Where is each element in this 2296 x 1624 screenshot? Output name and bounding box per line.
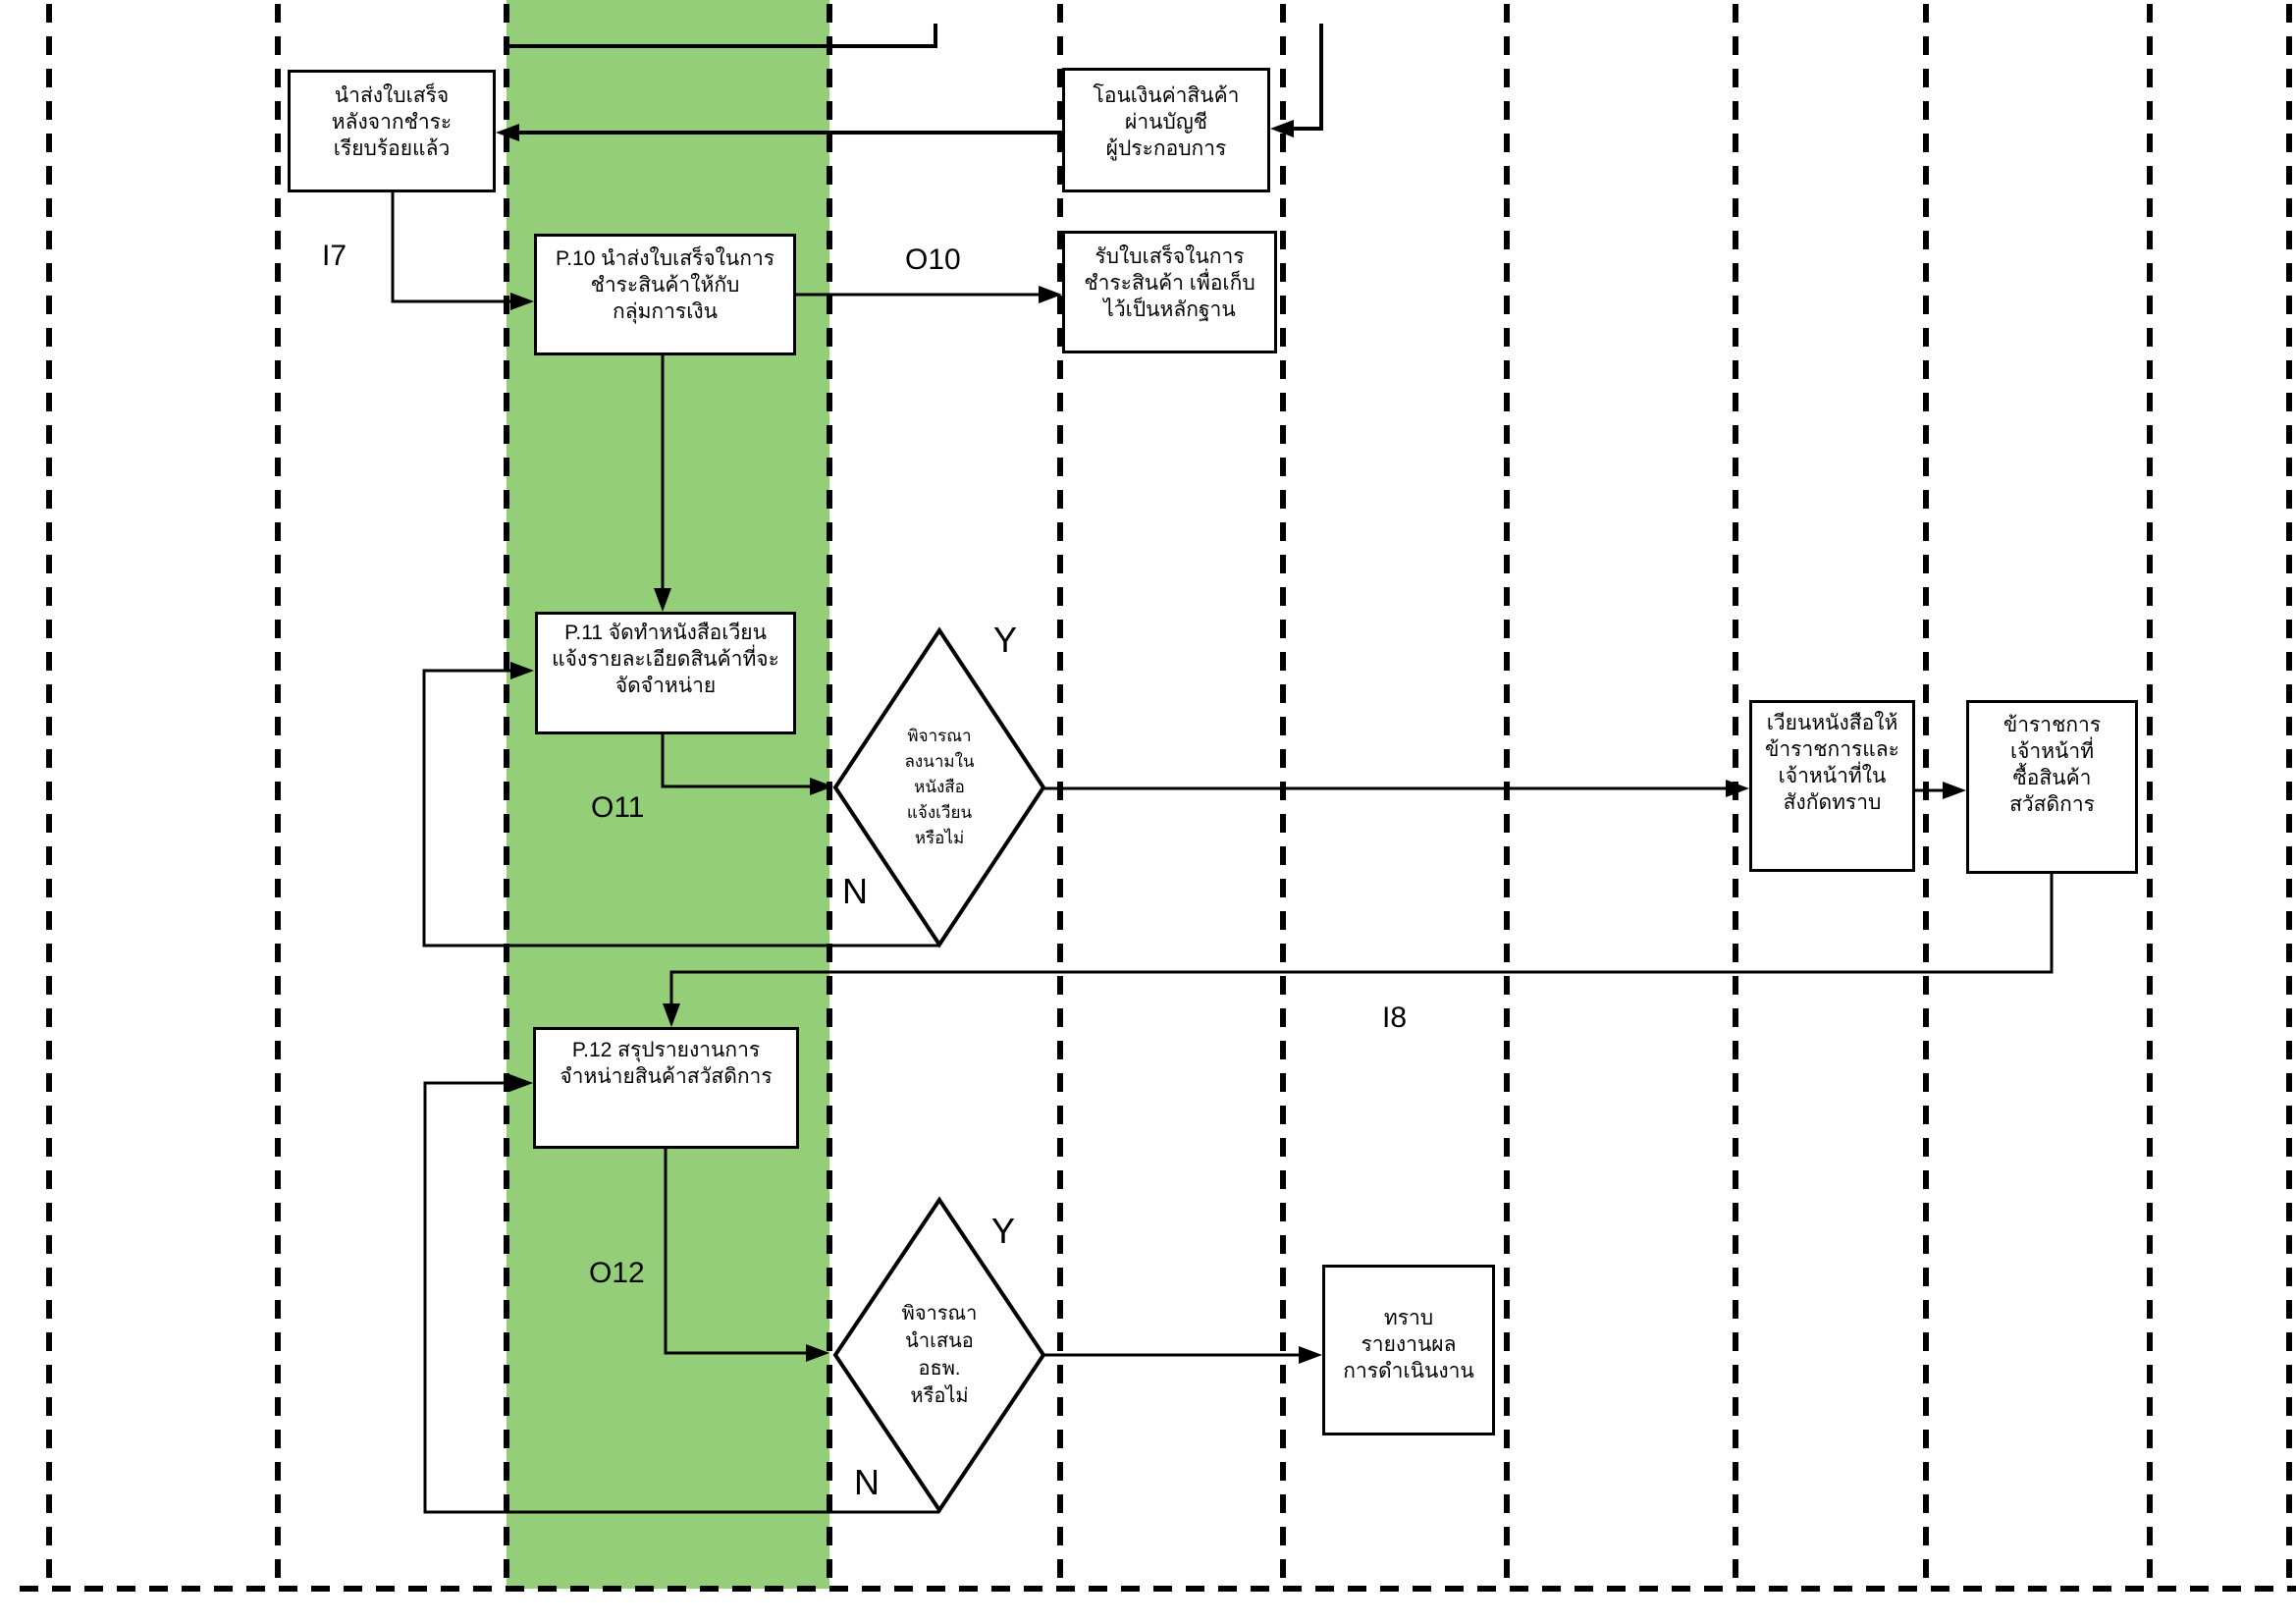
process-box-receipt-delivered: นำส่งใบเสร็จ หลังจากชำระ เรียบร้อยแล้ว [288, 70, 496, 192]
connector-o11-p11-to-decision1 [663, 734, 826, 786]
connector-o12-p12-to-decision2 [666, 1149, 822, 1353]
arrowhead-into-p12-top [663, 1003, 680, 1027]
process-box-transfer-money: โอนเงินค่าสินค้า ผ่านบัญชี ผู้ประกอบการ [1062, 68, 1270, 192]
arrowhead-into-p12-left [509, 1074, 533, 1092]
arrowhead-into-acknowledge [1299, 1346, 1322, 1364]
decision2-yes-label: Y [991, 1214, 1015, 1249]
arrowhead-into-p10 [510, 293, 534, 310]
process-box-officials-buy: ข้าราชการ เจ้าหน้าที่ ซื้อสินค้า สวัสดิก… [1966, 700, 2138, 874]
process-box-circulate-letter: เวียนหนังสือให้ ข้าราชการและ เจ้าหน้าที่… [1749, 700, 1915, 872]
process-box-p12: P.12 สรุปรายงานการ จำหน่ายสินค้าสวัสดิกา… [533, 1027, 799, 1149]
decision1-no-label: N [842, 874, 868, 909]
flow-label-i8: I8 [1382, 1003, 1407, 1033]
flow-label-o11: O11 [591, 793, 644, 823]
process-box-p10: P.10 นำส่งใบเสร็จในการ ชำระสินค้าให้กับ … [534, 234, 796, 355]
flowchart-canvas: นำส่งใบเสร็จ หลังจากชำระ เรียบร้อยแล้ว โ… [0, 0, 2296, 1624]
decision1-yes-label: Y [993, 623, 1017, 658]
arrowhead-into-decision2 [806, 1344, 829, 1362]
process-box-acknowledge-report: ทราบ รายงานผล การดำเนินงาน [1322, 1265, 1495, 1435]
decision2-no-label: N [854, 1465, 880, 1500]
process-box-p11: P.11 จัดทำหนังสือเวียน แจ้งรายละเอียดสิน… [535, 612, 796, 734]
flow-label-o12: O12 [589, 1259, 645, 1288]
arrowhead-into-officials [1943, 782, 1966, 799]
decision-text-present-director: พิจารณา นำเสนอ อธพ. หรือไม่ [861, 1300, 1018, 1410]
flow-label-o10: O10 [905, 245, 961, 275]
process-box-receive-receipt: รับใบเสร็จในการ ชำระสินค้า เพื่อเก็บ ไว้… [1062, 231, 1277, 353]
arrowhead-into-p11-top [654, 588, 671, 612]
connector-top-stub [507, 24, 935, 46]
arrowhead-into-p11-left [510, 662, 534, 679]
decision-text-sign-circular: พิจารณา ลงนามใน หนังสือ แจ้งเวียน หรือไม… [861, 724, 1018, 851]
flow-label-i7: I7 [322, 242, 347, 271]
